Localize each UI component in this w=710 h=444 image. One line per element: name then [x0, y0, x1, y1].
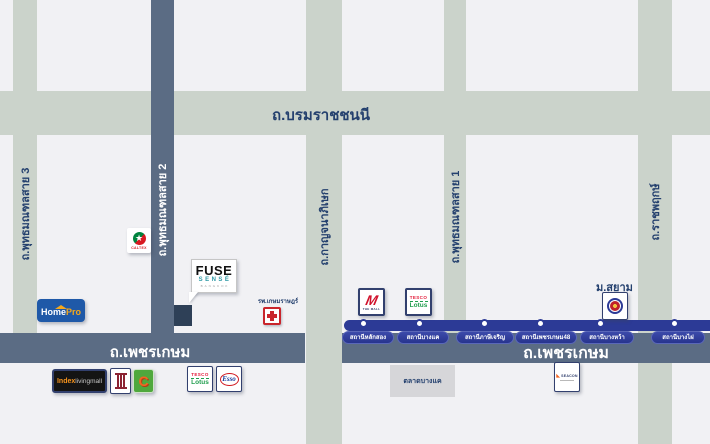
- fuse-sense-name: FUSE: [196, 264, 233, 277]
- fuse-sense-callout: FUSE SENSÉ BANGKOK: [191, 259, 237, 293]
- mrt-station-dot-lak-song: [359, 319, 368, 328]
- kasemrad-hospital-label: รพ.เกษมราษฎร์: [248, 296, 308, 306]
- road-label-phetkasem-east: ถ.เพชรเกษม: [342, 341, 710, 366]
- seacon-row: ◣ SEACON: [556, 374, 577, 379]
- mrt-station-pill-bang-khae: สถานีบางแค: [397, 331, 449, 344]
- mrt-station-pill-phetkasem-48: สถานีเพชรเกษม48: [515, 331, 577, 344]
- mrt-station-pill-bang-wa: สถานีบางหว้า: [580, 331, 634, 344]
- seacon-mark-icon: ◣: [556, 374, 560, 379]
- homepro-logo: HomePro: [37, 299, 85, 322]
- index-label: Index: [57, 378, 75, 385]
- mrt-station-dot-bang-khae: [415, 319, 424, 328]
- bang-khae-market-block: ตลาดบางแค: [390, 365, 455, 397]
- caltex-label: CALTEX: [131, 246, 147, 250]
- the-mall-logo: M THE MALL: [358, 288, 385, 316]
- column-icon: [115, 373, 127, 389]
- lotus-label-east: Lotus: [410, 302, 428, 309]
- mrt-station-dot-phasi-charoen: [480, 319, 489, 328]
- tesco-lotus-west-logo: TESCO Lotus: [187, 366, 213, 392]
- fuse-sense-site-marker: [174, 305, 192, 326]
- big-c-logo: C: [133, 369, 154, 393]
- mrt-station-pill-phasi-charoen: สถานีภาษีเจริญ: [456, 331, 514, 344]
- seacon-logo: ◣ SEACON: [554, 362, 580, 392]
- livingmall-label: livingmall: [75, 378, 102, 385]
- road-label-ratchaphruek: ถ.ราชพฤกษ์: [646, 142, 664, 282]
- fuse-sense-subtitle: SENSÉ: [199, 277, 232, 284]
- fuse-sense-callout-tail: [189, 292, 198, 303]
- road-label-kanchanaphisek: ถ.กาญจนาภิเษก: [315, 157, 333, 297]
- road-label-phutthamonthon-sai-1: ถ.พุทธมณฑลสาย 1: [446, 147, 464, 287]
- seacon-divider: [560, 380, 574, 381]
- mrt-station-pill-bang-phai: สถานีบางไผ่: [651, 331, 705, 344]
- tesco-label-west: TESCO: [191, 372, 209, 377]
- seacon-label: SEACON: [561, 374, 578, 379]
- road-label-phutthamonthon-sai-2: ถ.พุทธมณฑลสาย 2: [153, 140, 171, 280]
- column-shaft: [117, 375, 125, 387]
- mrt-blue-line: [344, 320, 710, 331]
- caltex-star-icon: ★: [133, 232, 146, 245]
- index-living-mall-logo: Indexlivingmall: [52, 369, 107, 393]
- bang-khae-market-label: ตลาดบางแค: [403, 376, 441, 387]
- homepro-label-pro: Pro: [66, 307, 81, 317]
- mrt-station-dot-phetkasem-48: [536, 319, 545, 328]
- location-map: ถ.บรมราชชนนี ถ.เพชรเกษม ถ.เพชรเกษม ถ.พุท…: [0, 0, 710, 444]
- road-label-borommaratchachonnani: ถ.บรมราชชนนี: [272, 103, 370, 127]
- lotus-label-west: Lotus: [191, 379, 209, 386]
- column-base: [115, 387, 127, 389]
- tesco-label-east: TESCO: [410, 295, 428, 300]
- cross-horizontal-bar: [267, 314, 277, 318]
- homepro-label-home: Home: [41, 307, 66, 317]
- fuse-sense-city: BANGKOK: [201, 284, 230, 288]
- mrt-station-dot-bang-phai: [670, 319, 679, 328]
- homepro-label: HomePro: [41, 308, 81, 317]
- esso-logo: Esso: [216, 366, 242, 392]
- university-column-logo: [110, 368, 131, 394]
- tesco-lotus-east-logo: TESCO Lotus: [405, 288, 432, 316]
- siam-emblem-core: [610, 301, 620, 311]
- mrt-station-dot-bang-wa: [596, 319, 605, 328]
- hospital-cross-icon: [263, 307, 281, 325]
- caltex-logo: ★ CALTEX: [127, 228, 151, 253]
- siam-emblem-icon: [607, 298, 623, 314]
- siam-university-emblem: [602, 292, 628, 320]
- road-label-phutthamonthon-sai-3: ถ.พุทธมณฑลสาย 3: [16, 144, 34, 284]
- road-label-phetkasem-west: ถ.เพชรเกษม: [0, 340, 300, 364]
- esso-label: Esso: [222, 375, 236, 383]
- big-c-letter: C: [138, 373, 148, 389]
- the-mall-m-icon: M: [364, 293, 379, 307]
- esso-oval-icon: Esso: [220, 373, 239, 386]
- mrt-station-pill-lak-song: สถานีหลักสอง: [342, 331, 394, 344]
